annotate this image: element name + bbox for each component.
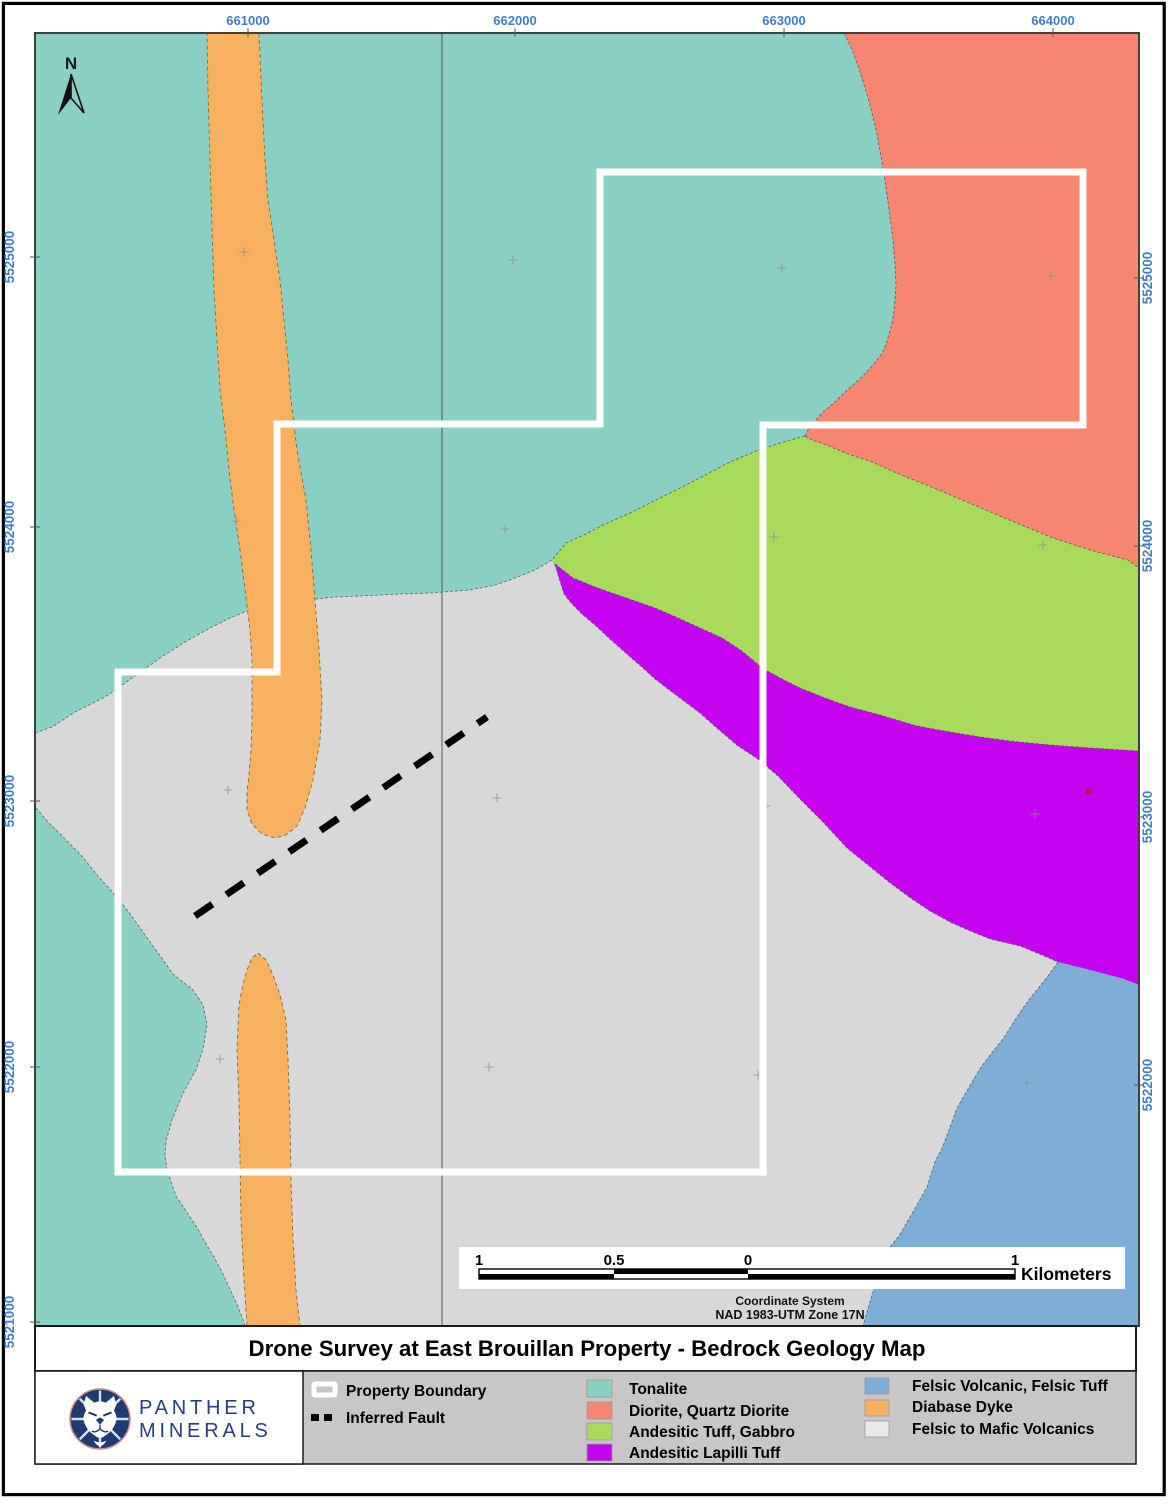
svg-text:Coordinate System: Coordinate System: [735, 1294, 844, 1308]
svg-text:Tonalite: Tonalite: [629, 1381, 688, 1398]
svg-text:Inferred Fault: Inferred Fault: [346, 1410, 445, 1427]
svg-text:1: 1: [475, 1252, 483, 1269]
svg-text:5521000: 5521000: [2, 1296, 17, 1349]
svg-text:Kilometers: Kilometers: [1021, 1264, 1112, 1284]
svg-text:664000: 664000: [1031, 13, 1074, 28]
svg-text:N: N: [65, 54, 77, 73]
svg-text:Felsic to Mafic Volcanics: Felsic to Mafic Volcanics: [912, 1421, 1094, 1438]
svg-text:Diabase Dyke: Diabase Dyke: [912, 1399, 1013, 1416]
svg-text:5525000: 5525000: [2, 231, 17, 284]
svg-text:NAD 1983-UTM Zone 17N: NAD 1983-UTM Zone 17N: [715, 1308, 864, 1322]
svg-text:PANTHER: PANTHER: [139, 1397, 260, 1419]
svg-text:MINERALS: MINERALS: [139, 1420, 272, 1442]
svg-text:5524000: 5524000: [2, 501, 17, 554]
svg-text:Property Boundary: Property Boundary: [346, 1383, 487, 1400]
svg-text:1: 1: [1011, 1252, 1019, 1269]
svg-text:5522000: 5522000: [2, 1041, 17, 1094]
svg-text:662000: 662000: [493, 13, 536, 28]
svg-text:661000: 661000: [226, 13, 269, 28]
svg-text:0.5: 0.5: [604, 1252, 625, 1269]
svg-text:Drone Survey at East Brouillan: Drone Survey at East Brouillan Property …: [249, 1336, 926, 1361]
svg-text:0: 0: [744, 1252, 752, 1269]
svg-text:Andesitic Lapilli Tuff: Andesitic Lapilli Tuff: [629, 1445, 781, 1462]
svg-text:5523000: 5523000: [2, 775, 17, 828]
svg-text:Diorite, Quartz Diorite: Diorite, Quartz Diorite: [629, 1403, 790, 1420]
svg-text:663000: 663000: [762, 13, 805, 28]
svg-text:Andesitic Tuff, Gabbro: Andesitic Tuff, Gabbro: [629, 1424, 795, 1441]
svg-text:Felsic Volcanic, Felsic Tuff: Felsic Volcanic, Felsic Tuff: [912, 1378, 1109, 1395]
